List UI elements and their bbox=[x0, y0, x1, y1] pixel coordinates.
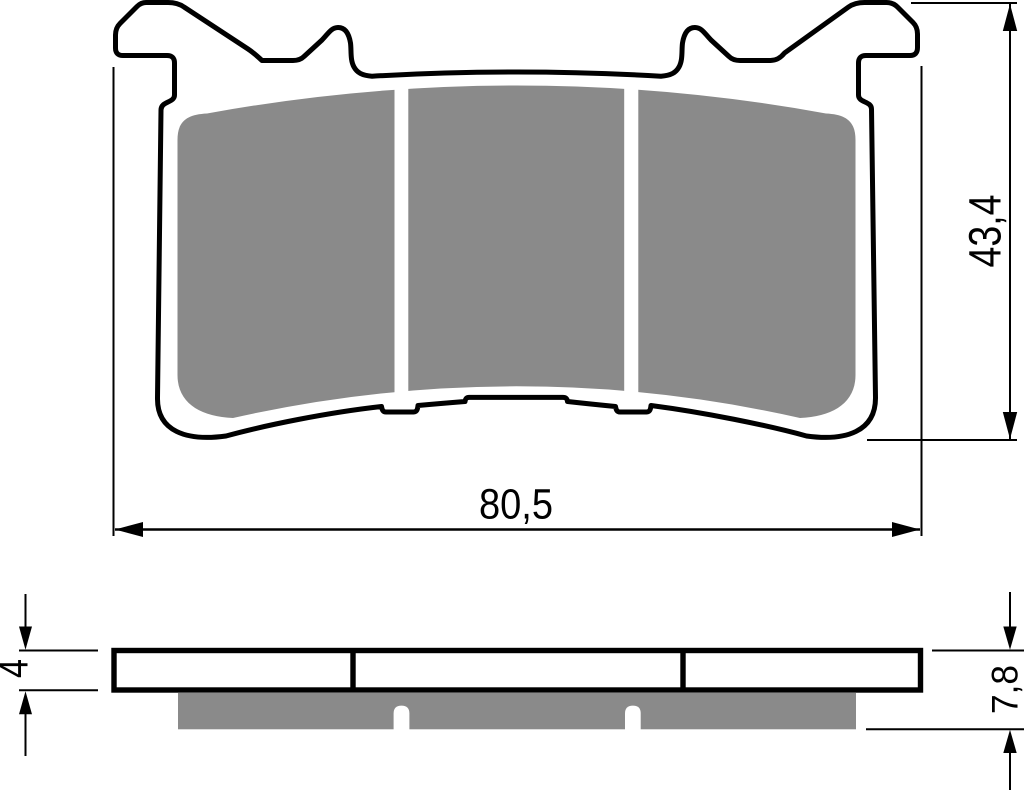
svg-text:7,8: 7,8 bbox=[985, 665, 1024, 714]
svg-text:43,4: 43,4 bbox=[960, 195, 1011, 268]
svg-text:80,5: 80,5 bbox=[479, 481, 553, 529]
svg-text:4: 4 bbox=[0, 659, 37, 678]
